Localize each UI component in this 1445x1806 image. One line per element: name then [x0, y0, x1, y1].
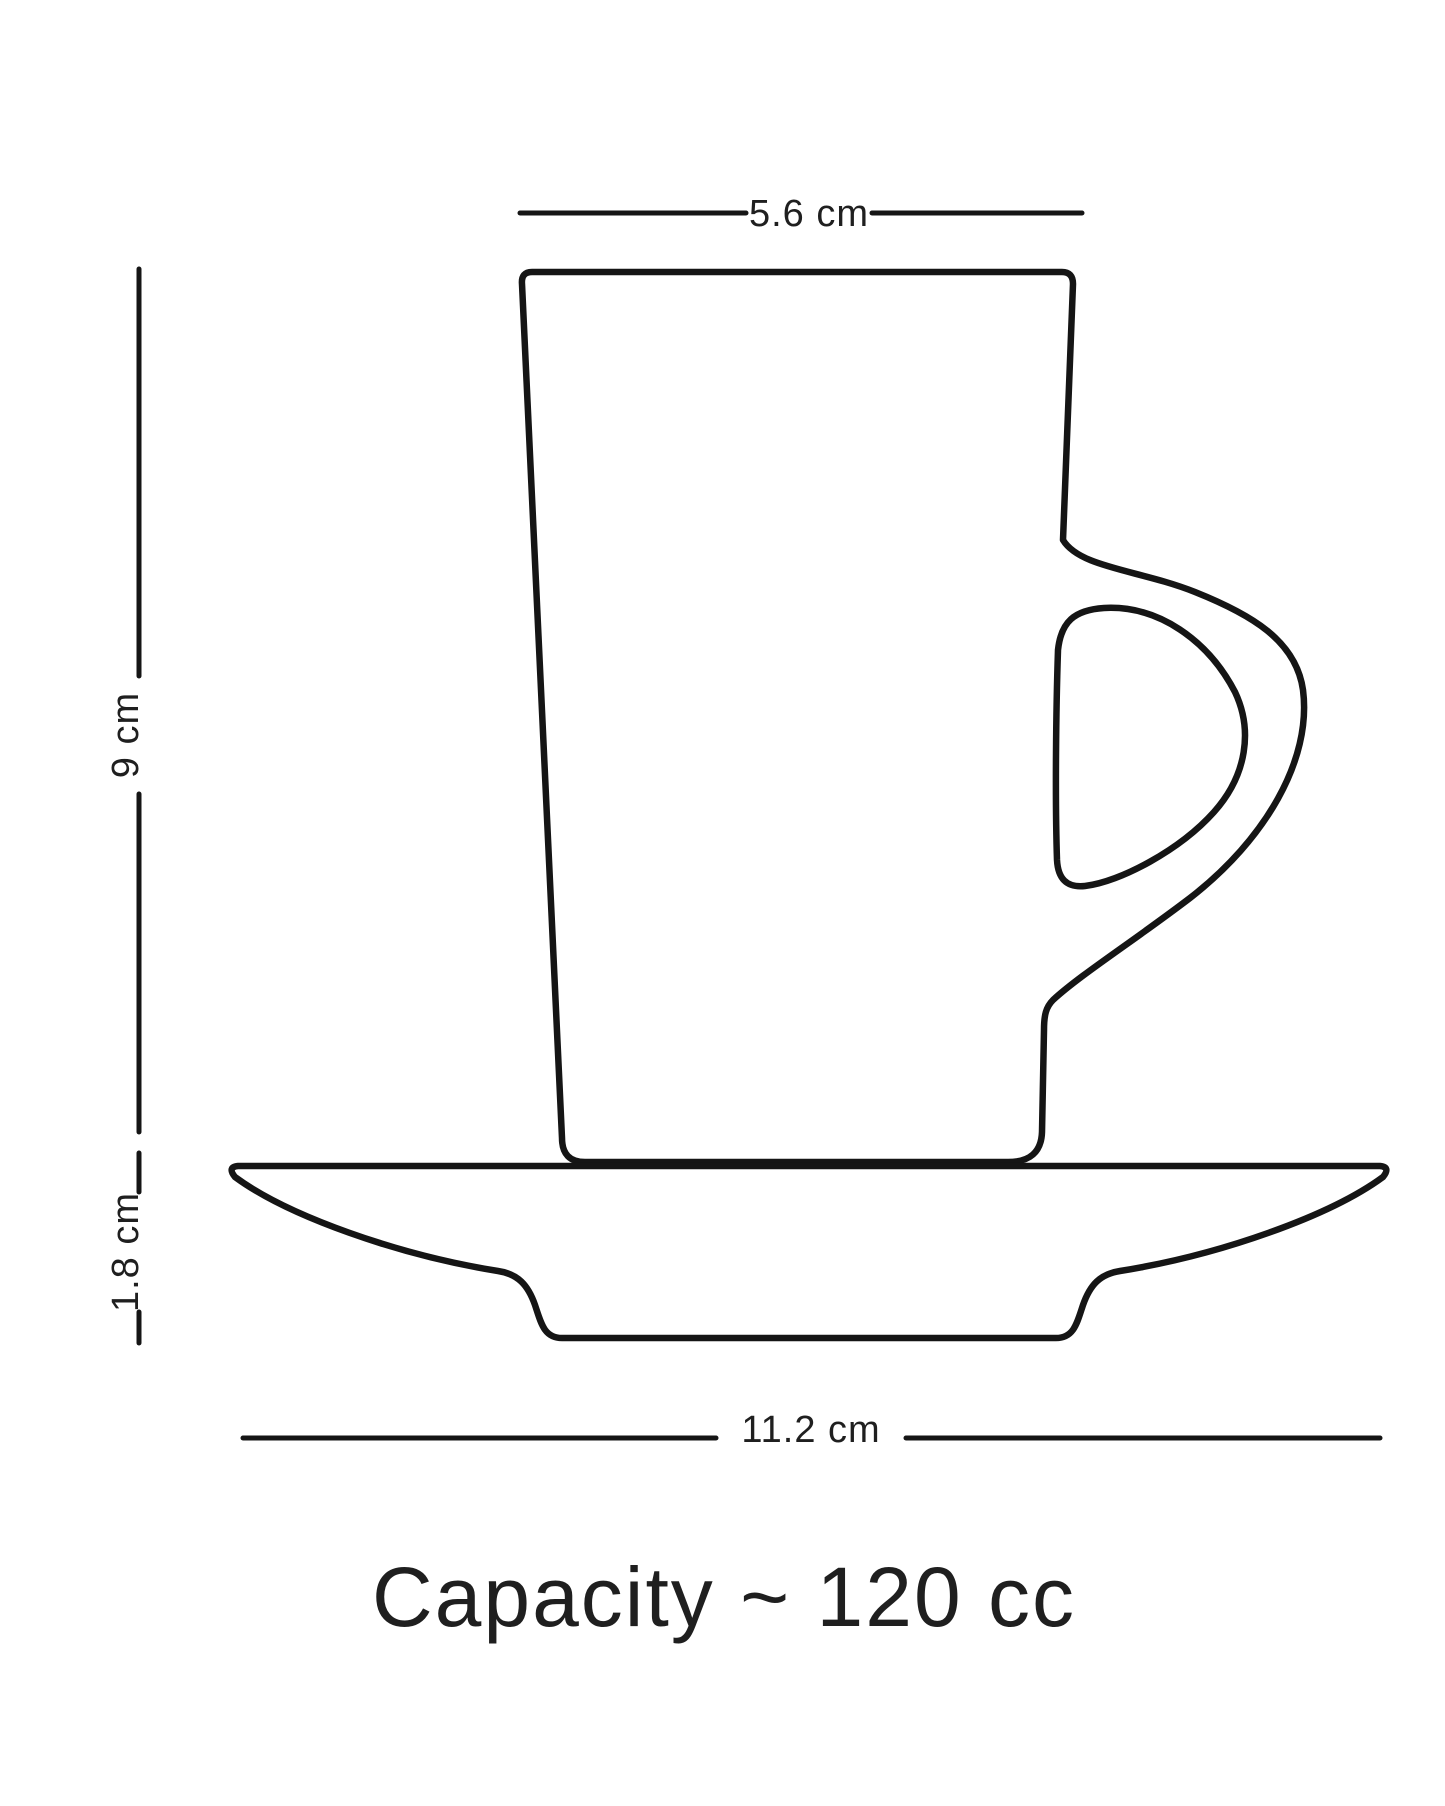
saucer-outline: [232, 1166, 1387, 1338]
page: 5.6 cm 9 cm 1.8 cm 11.2 cm Capacity ~ 12…: [0, 0, 1445, 1806]
cup-width-label: 5.6 cm: [749, 193, 869, 235]
saucer-height-label: 1.8 cm: [105, 1192, 147, 1312]
cup-outline: [522, 272, 1304, 1162]
cup-dimension-diagram: 5.6 cm 9 cm 1.8 cm 11.2 cm Capacity ~ 12…: [0, 0, 1445, 1806]
cup-handle-hole: [1056, 608, 1245, 886]
drawing-strokes: [139, 213, 1386, 1438]
cup-height-label: 9 cm: [105, 692, 147, 778]
saucer-width-label: 11.2 cm: [741, 1409, 880, 1451]
capacity-caption: Capacity ~ 120 cc: [372, 1550, 1076, 1644]
